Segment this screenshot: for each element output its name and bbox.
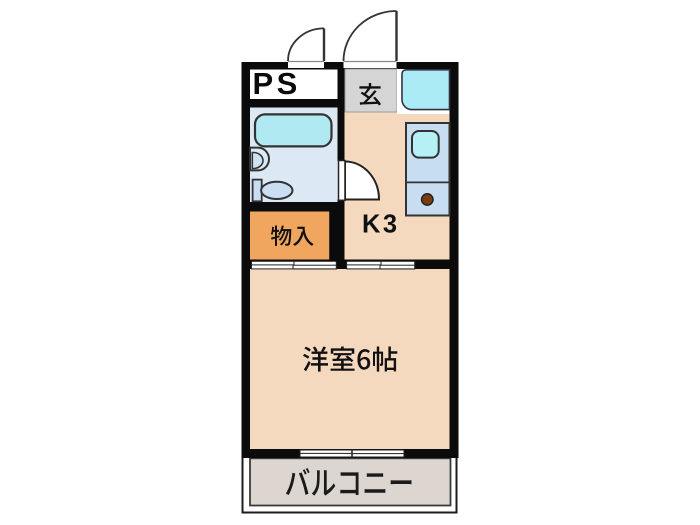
svg-text:K3: K3 <box>362 211 400 239</box>
svg-text:PS: PS <box>253 66 301 101</box>
